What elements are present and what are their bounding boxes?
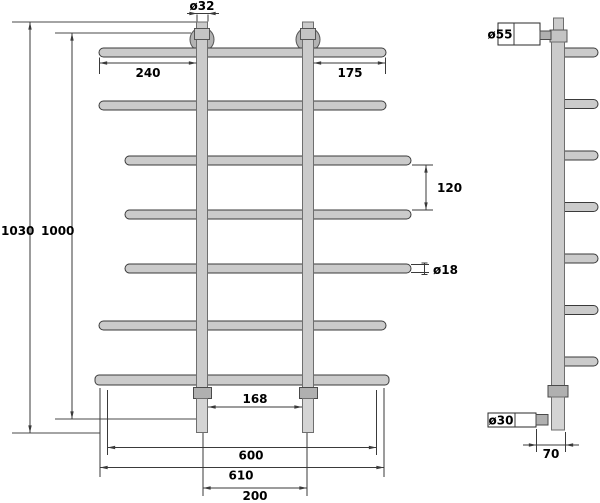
dimension-bar-diameter: ø18 [411, 263, 458, 277]
bar [125, 264, 411, 273]
dimension-wall-distance: 70 [523, 429, 579, 461]
post-left [197, 22, 208, 388]
bottom-bar [95, 375, 389, 385]
dimension-mount-height: 1000 [41, 33, 196, 419]
side-post-body [552, 42, 565, 386]
dim-label-connector-diameter: ø30 [489, 414, 514, 428]
dimension-right-offset: 175 [314, 58, 386, 81]
dimension-left-offset: 240 [100, 58, 197, 81]
bar [99, 48, 386, 57]
side-bracket-clamp [550, 30, 567, 42]
dim-label-left-offset: 240 [135, 66, 160, 80]
bottom-connector-arm [536, 415, 548, 426]
dim-label-mount-height: 1000 [41, 224, 74, 238]
dimension-total-height: 1030 [1, 22, 196, 433]
side-view: ø55 ø30 70 [488, 18, 598, 461]
coupling-left [194, 388, 212, 399]
side-post-top-stub [554, 18, 564, 31]
dimension-bracket-diameter: ø55 [488, 23, 551, 45]
bracket-clamp-right [301, 29, 316, 40]
coupling-right [300, 388, 318, 399]
dim-label-total-height: 1030 [1, 224, 34, 238]
post-stub-right [303, 399, 314, 433]
bar [125, 156, 411, 165]
dim-label-post-diameter: ø32 [190, 0, 215, 13]
dim-label-bracket-diameter: ø55 [488, 28, 513, 42]
dim-label-wall-distance: 70 [543, 447, 560, 461]
bar [125, 210, 411, 219]
dimension-bar-gap: 120 [412, 165, 462, 210]
horizontal-bars [95, 48, 411, 385]
dim-label-bar-gap: 120 [437, 181, 462, 195]
dimension-post-diameter: ø32 [187, 0, 219, 22]
bar [99, 321, 386, 330]
post-stub-left [197, 399, 208, 433]
dim-label-rail-width: 600 [238, 449, 263, 463]
side-coupling [548, 386, 568, 398]
post-right [303, 22, 314, 388]
side-post-bottom-stub [552, 397, 565, 430]
vertical-posts [194, 22, 318, 433]
bracket-arm [540, 31, 551, 40]
bar [99, 101, 386, 110]
dim-label-right-offset: 175 [337, 66, 362, 80]
dim-label-bottom-bar-width: 610 [228, 469, 253, 483]
dim-label-bar-diameter: ø18 [433, 263, 458, 277]
dimension-inner-width: 168 [208, 392, 302, 407]
dim-label-inner-width: 168 [242, 392, 267, 406]
bracket-clamp-left [195, 29, 210, 40]
side-post [548, 18, 568, 430]
technical-drawing: ø32 1030 1000 240 175 [0, 0, 600, 503]
dimension-connector-diameter: ø30 [488, 413, 548, 428]
dim-label-post-spacing: 200 [242, 489, 267, 503]
front-view: ø32 1030 1000 240 175 [1, 0, 462, 503]
